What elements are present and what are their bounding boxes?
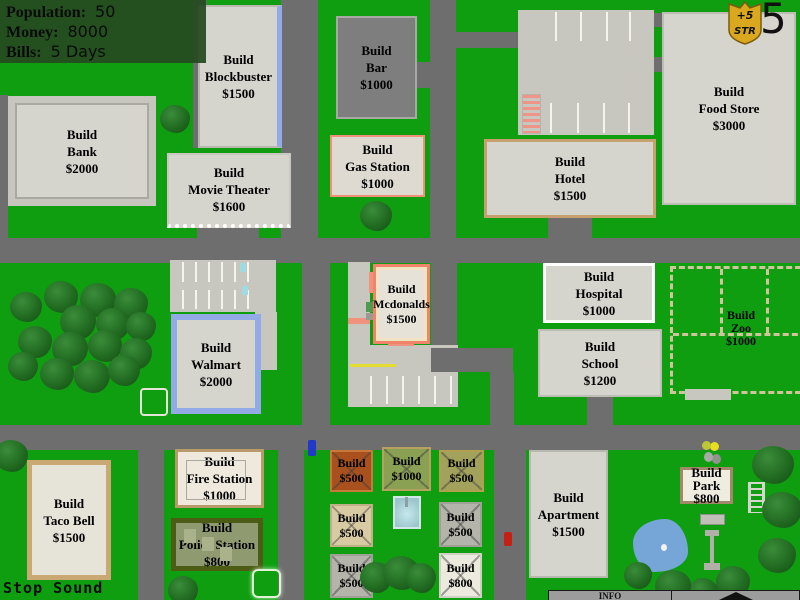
building-price-label: $3000 — [713, 117, 746, 134]
shopping-cart-icon — [240, 263, 246, 272]
building-name-label: School — [582, 355, 619, 372]
build-school-button[interactable]: Build School $1200 — [538, 329, 662, 397]
building-price-label: $2000 — [200, 373, 233, 390]
build-action-label: Build — [54, 495, 84, 512]
build-action-label: Build — [585, 338, 615, 355]
parking-line — [580, 12, 582, 41]
tree — [74, 360, 110, 393]
building-name-label: Fire Station — [187, 470, 253, 487]
tree — [0, 440, 28, 472]
stats-hud: Population: 50 Money: 8000 Bills: 5 Days — [0, 0, 206, 63]
car-red — [504, 532, 512, 546]
building-name-label: Gas Station — [345, 158, 410, 175]
parking-line — [234, 290, 236, 309]
parking-line — [418, 376, 420, 404]
road-segment — [0, 238, 800, 263]
build-action-label: Build — [387, 282, 415, 297]
building-price-label: $1500 — [552, 523, 585, 540]
money-row: Money: 8000 — [6, 22, 200, 42]
parking-line — [550, 103, 552, 133]
building-name-label: Hospital — [576, 285, 623, 302]
parking-lot — [170, 260, 276, 312]
flower-gray — [704, 452, 713, 462]
road-segment — [494, 450, 526, 600]
building-name-label: Blockbuster — [205, 68, 272, 85]
tree — [160, 105, 190, 133]
bills-value: 5 Days — [51, 42, 106, 62]
svg-text:STR: STR — [734, 26, 756, 37]
info-tab[interactable]: INFO — [549, 591, 672, 600]
parking-line — [603, 103, 605, 133]
build-bar-button[interactable]: Build Bar $1000 — [336, 16, 417, 119]
build-apartment-button[interactable]: Build Apartment $1500 — [529, 450, 608, 578]
building-name-label: Movie Theater — [188, 181, 270, 198]
shopping-cart-icon — [242, 286, 248, 295]
road-segment — [302, 262, 330, 425]
parking-line — [182, 262, 184, 282]
build-hotel-button[interactable]: Build Hotel $1500 — [484, 139, 656, 218]
parking-line — [628, 103, 630, 133]
zoo-path — [685, 389, 731, 400]
lot-price-label: $500 — [340, 526, 364, 541]
build-action-label: Build — [214, 164, 244, 181]
lot-price-label: $500 — [449, 525, 473, 540]
building-price-label: $800 — [694, 492, 720, 505]
build-action-label: Build — [337, 456, 365, 471]
build-police-station-button[interactable]: Build Police Station $800 — [171, 518, 263, 571]
road-segment — [278, 450, 304, 600]
parking-line — [402, 376, 404, 404]
building-price-label: $2000 — [66, 160, 99, 177]
parking-line — [208, 290, 210, 309]
build-action-label: Build — [447, 456, 475, 471]
build-action-label: Build — [392, 454, 420, 469]
tree — [40, 358, 74, 390]
road-segment — [138, 450, 164, 600]
building-price-label: $800 — [204, 553, 230, 570]
build-mcdonalds-button[interactable]: Build Mcdonalds $1500 — [373, 264, 430, 344]
diving-board — [405, 497, 408, 507]
sound-toggle-button[interactable]: Stop Sound — [3, 579, 103, 597]
build-action-label: Build — [584, 268, 614, 285]
bills-label: Bills: — [6, 43, 42, 63]
info-bar[interactable]: INFO — [548, 590, 800, 600]
build-action-label: Build — [446, 510, 474, 525]
parking-line — [221, 262, 223, 282]
building-price-label: $1000 — [705, 335, 777, 348]
svg-text:+5: +5 — [737, 9, 754, 22]
tetherball-pole — [710, 536, 714, 564]
build-house-lot-button[interactable]: Build $800 — [439, 553, 482, 598]
game-map: Build Zoo $1000 Build Bank $2000 Build B… — [0, 0, 800, 600]
building-price-label: $1200 — [584, 372, 617, 389]
population-row: Population: 50 — [6, 2, 200, 22]
money-label: Money: — [6, 23, 58, 43]
building-name-label: Food Store — [699, 100, 760, 117]
parking-line — [577, 103, 579, 133]
building-name-label: Bar — [366, 59, 387, 76]
parking-line — [555, 12, 557, 41]
money-value: 8000 — [67, 22, 108, 42]
building-price-label: $1000 — [361, 175, 394, 192]
building-price-label: $1500 — [554, 187, 587, 204]
parking-line — [195, 290, 197, 309]
tree — [762, 492, 800, 528]
parking-line — [234, 262, 236, 282]
build-park-button[interactable]: Build Park $800 — [680, 467, 733, 504]
expand-panel-button[interactable] — [672, 591, 799, 600]
tetherball-pole — [704, 563, 720, 570]
build-action-label: Build — [202, 519, 232, 536]
counter-value: 5 — [760, 0, 787, 43]
lot-price-label: $500 — [340, 471, 364, 486]
parking-line — [629, 12, 631, 41]
build-action-label: Build — [553, 489, 583, 506]
building-price-label: $1500 — [53, 529, 86, 546]
build-action-label: Build — [555, 153, 585, 170]
parking-line — [434, 376, 436, 404]
build-house-lot-button[interactable]: Build $1000 — [382, 447, 431, 491]
parking-line — [247, 262, 249, 282]
tree — [126, 312, 156, 341]
build-movie-theater-button[interactable]: Build Movie Theater $1600 — [167, 153, 291, 228]
build-house-lot-button[interactable]: Build $500 — [330, 450, 373, 492]
strength-bonus-badge: +5 STR — [727, 1, 763, 45]
build-action-label: Build — [223, 51, 253, 68]
building-name-label: Bank — [67, 143, 97, 160]
build-action-label: Build — [714, 83, 744, 100]
build-action-label: Build — [337, 511, 365, 526]
triangle-up-icon — [719, 592, 753, 600]
tree — [624, 562, 652, 589]
parking-line — [221, 290, 223, 309]
road-segment — [0, 95, 8, 238]
driveway — [456, 32, 518, 48]
driveway — [587, 396, 613, 427]
building-name-label: Walmart — [191, 356, 241, 373]
parking-line — [606, 12, 608, 41]
build-bank-button[interactable]: Build Bank $2000 — [8, 96, 156, 206]
tree — [108, 355, 140, 386]
driveway — [415, 62, 437, 88]
lot-price-label: $500 — [450, 471, 474, 486]
bird — [661, 544, 667, 551]
lot-price-label: $1000 — [392, 469, 422, 484]
car-blue — [308, 440, 316, 456]
build-taco-bell-button[interactable]: Build Taco Bell $1500 — [27, 460, 111, 580]
build-action-label: Build — [362, 141, 392, 158]
build-walmart-button[interactable]: Build Walmart $2000 — [171, 314, 261, 414]
build-zoo-label: Build Zoo $1000 — [705, 309, 777, 348]
parking-line — [450, 376, 452, 404]
empty-lot-outline — [252, 569, 281, 598]
population-value: 50 — [95, 2, 115, 22]
building-price-label: $1000 — [360, 76, 393, 93]
building-price-label: $1500 — [387, 312, 417, 327]
population-label: Population: — [6, 3, 86, 23]
building-name-label: Apartment — [538, 506, 599, 523]
driveway — [197, 227, 259, 240]
building-price-label: $1000 — [583, 302, 616, 319]
road-segment — [431, 348, 513, 372]
build-action-label: Build — [361, 42, 391, 59]
parking-line-yellow — [350, 364, 396, 367]
build-hospital-button[interactable]: Build Hospital $1000 — [543, 263, 655, 323]
fire-escape — [522, 94, 541, 134]
build-house-lot-button[interactable]: Build $500 — [439, 450, 484, 492]
shield-icon: +5 STR — [727, 1, 763, 45]
driveway — [548, 217, 592, 240]
road-segment — [490, 372, 514, 450]
tree — [752, 446, 794, 484]
build-zoo-button[interactable]: Build Zoo $1000 — [670, 266, 800, 394]
build-action-label: Build — [201, 339, 231, 356]
parking-line — [208, 262, 210, 282]
bills-row: Bills: 5 Days — [6, 42, 200, 62]
building-price-label: $1600 — [213, 198, 246, 215]
building-name-label: Mcdonalds — [373, 297, 430, 312]
parking-line — [386, 376, 388, 404]
build-action-label: Build — [204, 453, 234, 470]
parking-line — [195, 262, 197, 282]
build-blockbuster-button[interactable]: Build Blockbuster $1500 — [198, 5, 282, 148]
building-price-label: $1000 — [203, 487, 236, 504]
build-house-lot-button[interactable]: Build $500 — [330, 504, 373, 547]
build-house-lot-button[interactable]: Build $500 — [439, 502, 482, 547]
tree — [10, 292, 42, 322]
build-gas-station-button[interactable]: Build Gas Station $1000 — [330, 135, 425, 197]
tree — [168, 576, 198, 600]
tree — [8, 352, 38, 381]
building-name-label: Taco Bell — [43, 512, 94, 529]
building-name-label: Police Station — [179, 536, 255, 553]
tree — [360, 201, 392, 231]
bench — [700, 514, 725, 525]
building-name-label: Hotel — [555, 170, 585, 187]
building-price-label: $1500 — [222, 85, 255, 102]
flower-yellow — [702, 441, 711, 450]
parking-line — [182, 290, 184, 309]
tree — [758, 538, 796, 573]
build-action-label: Build — [67, 126, 97, 143]
build-action-label: Build — [446, 561, 474, 576]
build-fire-station-button[interactable]: Build Fire Station $1000 — [175, 449, 264, 508]
lot-price-label: $800 — [449, 576, 473, 591]
empty-lot-outline — [140, 388, 168, 416]
tree — [406, 563, 436, 593]
road-segment — [430, 0, 456, 238]
parking-line — [370, 376, 372, 404]
